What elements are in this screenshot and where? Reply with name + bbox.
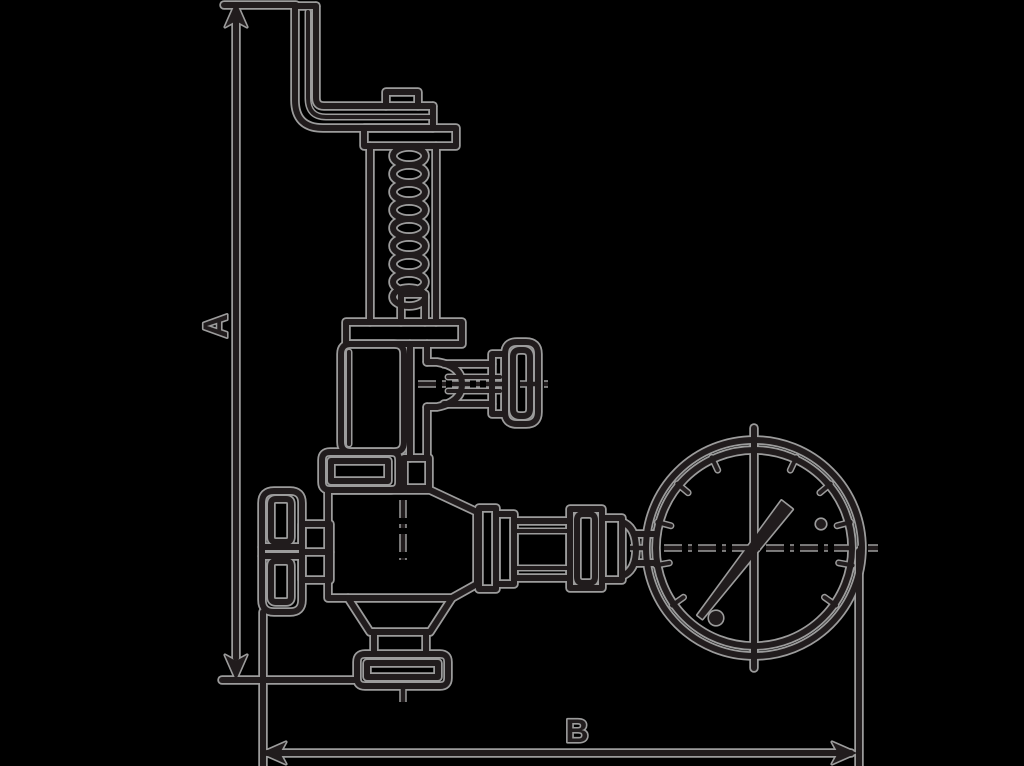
- technical-drawing: A B: [0, 0, 1024, 766]
- ink-layer: [197, 2, 878, 766]
- drawing-canvas: A B: [0, 0, 1024, 766]
